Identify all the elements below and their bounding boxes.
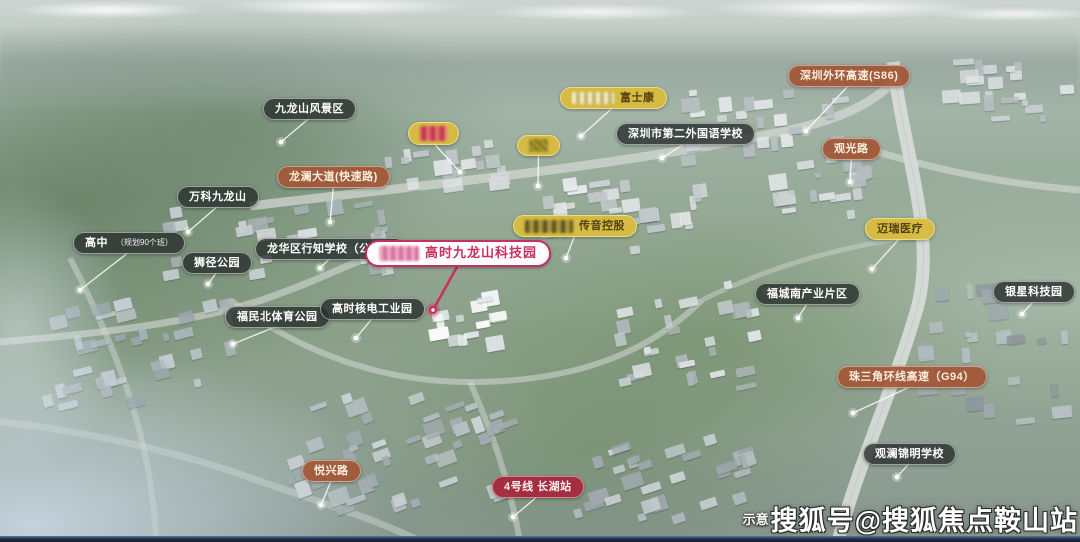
- company-blurred-1-blurred-logo: [420, 126, 447, 141]
- aerial-masterplan-map: 九龙山风景区龙澜大道(快速路)富士康深圳市第二外国语学校深圳外环高速(S86)观…: [0, 0, 1080, 542]
- gaoshi-jiulongshan-tech-park-blurred-logo: [379, 246, 419, 261]
- map-label-high-school-planned: 高中（规划90个班）: [73, 232, 185, 254]
- map-label-shijing-park: 狮径公园: [182, 252, 252, 274]
- label-text: 珠三角环线高速（G94）: [849, 370, 975, 384]
- map-label-prd-ring-expressway: 珠三角环线高速（G94）: [837, 366, 987, 388]
- label-text: 4号线 长湖站: [504, 480, 572, 494]
- label-text: 观光路: [834, 142, 869, 156]
- map-label-company-blurred-2: [517, 135, 560, 156]
- label-text: 福城南产业片区: [767, 287, 848, 301]
- map-label-sz-outer-ring-expressway: 深圳外环高速(S86): [788, 65, 910, 87]
- map-label-jiulongshan-scenic-area: 九龙山风景区: [263, 98, 356, 120]
- map-label-guanlan-jinming-school: 观澜锦明学校: [863, 443, 956, 465]
- watermark-text: 搜狐号@搜狐焦点鞍山站: [771, 499, 1078, 538]
- label-text: 富士康: [620, 91, 655, 105]
- map-labels-layer: 九龙山风景区龙澜大道(快速路)富士康深圳市第二外国语学校深圳外环高速(S86)观…: [0, 0, 1080, 542]
- company-blurred-2-blurred-logo: [529, 139, 548, 152]
- label-text: 高中: [85, 236, 108, 250]
- label-text: 狮径公园: [194, 256, 240, 270]
- foxconn-blurred-logo: [572, 92, 614, 104]
- map-label-foxconn: 富士康: [560, 87, 667, 109]
- note-text: 示意: [743, 509, 769, 528]
- label-text: 悦兴路: [314, 464, 349, 478]
- map-label-gaoshi-jiulongshan-tech-park: 高时九龙山科技园: [365, 240, 551, 267]
- map-label-transsion-holdings: 传音控股: [513, 215, 637, 237]
- label-text: 万科九龙山: [189, 190, 247, 204]
- map-label-fumin-north-sports-park: 福民北体育公园: [225, 306, 330, 328]
- map-label-yinxing-tech-park: 银星科技园: [993, 281, 1075, 303]
- label-text: 龙澜大道(快速路): [289, 170, 378, 184]
- label-text: 高时核电工业园: [332, 302, 413, 316]
- map-label-sz-second-foreign-school: 深圳市第二外国语学校: [616, 123, 755, 145]
- label-text: 深圳外环高速(S86): [800, 69, 898, 83]
- map-label-mindray-medical: 迈瑞医疗: [865, 218, 935, 240]
- transsion-holdings-blurred-logo: [525, 220, 573, 233]
- map-label-guanguang-road: 观光路: [822, 138, 881, 160]
- label-text: 九龙山风景区: [275, 102, 344, 116]
- label-text: 迈瑞医疗: [877, 222, 923, 236]
- label-text: 深圳市第二外国语学校: [628, 127, 743, 141]
- map-label-company-blurred-1: [408, 122, 459, 145]
- label-text: 观澜锦明学校: [875, 447, 944, 461]
- label-text: 银星科技园: [1005, 285, 1063, 299]
- map-label-vanke-jiulongshan: 万科九龙山: [177, 186, 259, 208]
- map-label-longlan-avenue: 龙澜大道(快速路): [277, 166, 390, 188]
- label-text: 传音控股: [579, 219, 625, 233]
- footer-overlay: 示意 搜狐号@搜狐焦点鞍山站: [743, 499, 1078, 538]
- map-label-line4-changhu-station: 4号线 长湖站: [492, 476, 584, 498]
- map-label-gaoshi-nuclear-industrial-park: 高时核电工业园: [320, 298, 425, 320]
- label-subtext: （规划90个班）: [116, 238, 173, 248]
- map-label-fucheng-south-industry-zone: 福城南产业片区: [755, 283, 860, 305]
- map-label-yuexing-road: 悦兴路: [302, 460, 361, 482]
- label-text: 高时九龙山科技园: [425, 245, 537, 262]
- label-text: 福民北体育公园: [237, 310, 318, 324]
